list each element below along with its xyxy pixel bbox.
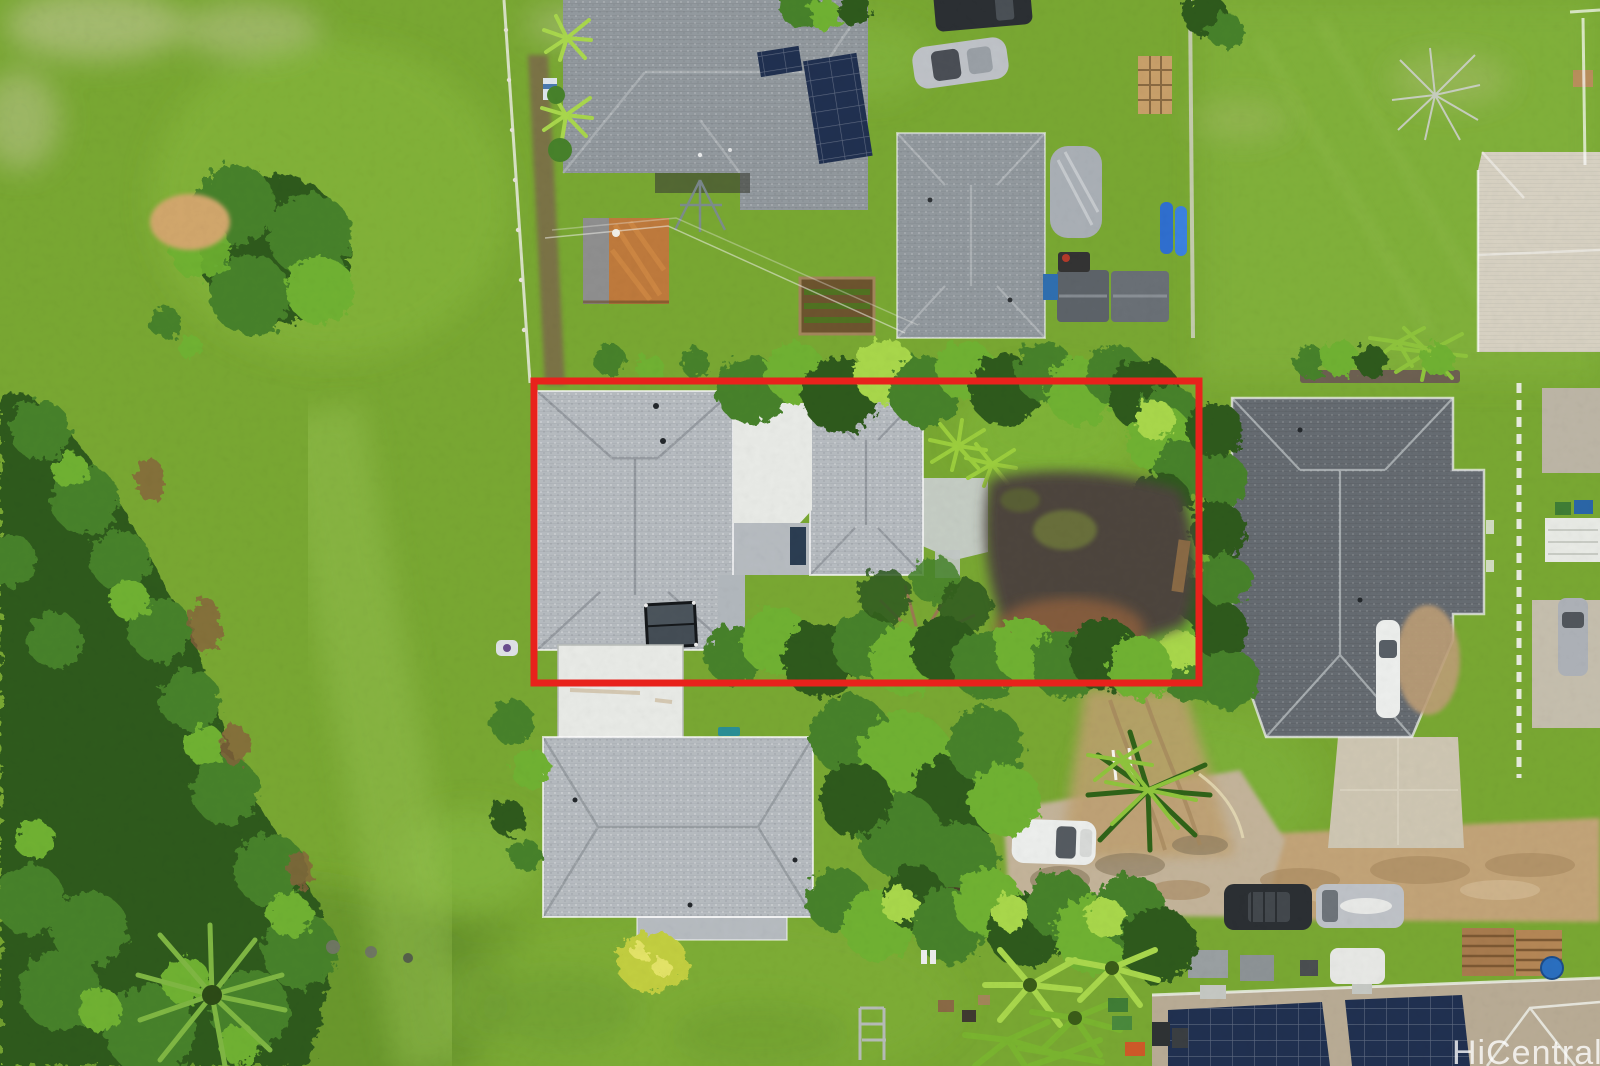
watermark: HiCentralMLS	[1452, 1034, 1600, 1066]
aerial-photo-stage: HiCentralMLS	[0, 0, 1600, 1066]
aerial-photo	[0, 0, 1600, 1066]
photo-grain	[0, 0, 1600, 1066]
